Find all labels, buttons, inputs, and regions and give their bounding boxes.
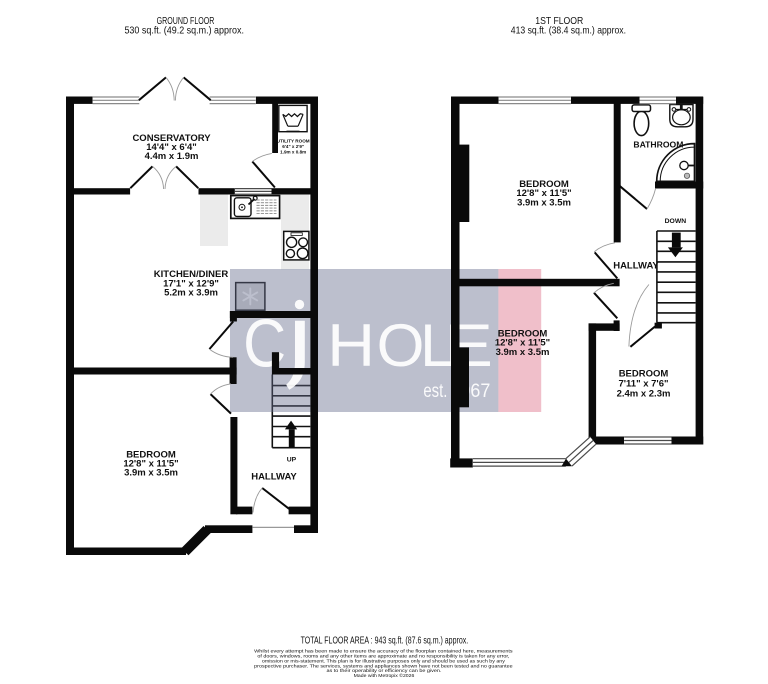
svg-text:UP: UP	[287, 457, 297, 464]
svg-text:1.9m x 0.8m: 1.9m x 0.8m	[280, 149, 306, 154]
svg-text:BATHROOM: BATHROOM	[633, 139, 683, 149]
svg-text:530 sq.ft. (49.2 sq.m.) approx: 530 sq.ft. (49.2 sq.m.) approx.	[124, 25, 244, 36]
svg-text:UTILITY ROOM: UTILITY ROOM	[277, 139, 310, 144]
svg-text:3.9m x 3.5m: 3.9m x 3.5m	[124, 468, 178, 479]
svg-text:413 sq.ft. (38.4 sq.m.) approx: 413 sq.ft. (38.4 sq.m.) approx.	[511, 25, 626, 36]
svg-text:3.9m x 3.5m: 3.9m x 3.5m	[496, 347, 550, 358]
svg-text:6'4" x 2'9": 6'4" x 2'9"	[282, 144, 304, 149]
svg-text:2.4m x 2.3m: 2.4m x 2.3m	[617, 389, 671, 400]
svg-text:HALLWAY: HALLWAY	[613, 260, 659, 271]
svg-text:4.4m x 1.9m: 4.4m x 1.9m	[145, 151, 199, 162]
svg-text:TOTAL FLOOR AREA : 943 sq.ft.: TOTAL FLOOR AREA : 943 sq.ft. (87.6 sq.m…	[301, 635, 469, 646]
svg-text:HALLWAY: HALLWAY	[251, 472, 297, 483]
svg-text:Made with Metropix ©2026: Made with Metropix ©2026	[354, 672, 415, 679]
svg-text:3.9m x 3.5m: 3.9m x 3.5m	[517, 197, 571, 208]
svg-text:DOWN: DOWN	[665, 218, 687, 225]
svg-text:5.2m x 3.9m: 5.2m x 3.9m	[164, 288, 218, 299]
